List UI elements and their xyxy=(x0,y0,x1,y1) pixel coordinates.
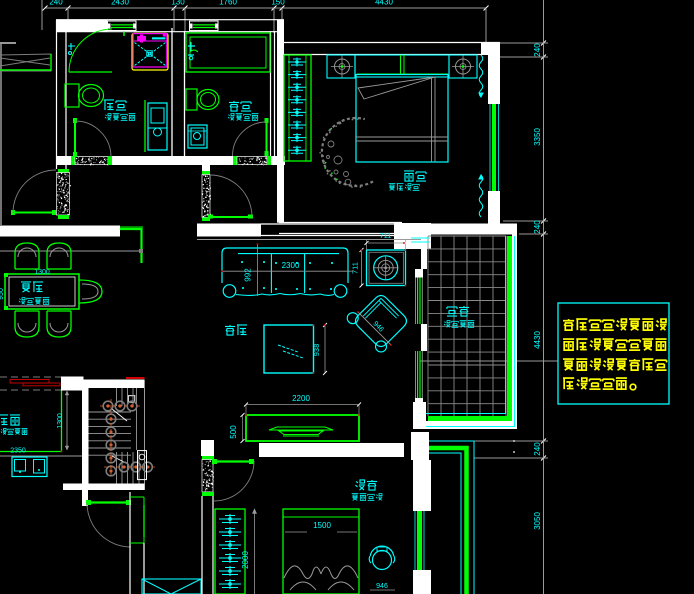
svg-text:4430: 4430 xyxy=(533,331,542,349)
svg-text:711: 711 xyxy=(380,231,392,240)
svg-text:1300: 1300 xyxy=(34,269,50,276)
svg-text:2430: 2430 xyxy=(111,0,129,7)
svg-text:2000: 2000 xyxy=(241,551,250,569)
svg-text:992: 992 xyxy=(244,268,253,282)
svg-text:150: 150 xyxy=(271,0,285,7)
svg-text:4430: 4430 xyxy=(375,0,393,7)
svg-text:2350: 2350 xyxy=(10,448,26,455)
svg-text:1500: 1500 xyxy=(313,521,331,530)
svg-text:950: 950 xyxy=(0,288,5,300)
svg-text:130: 130 xyxy=(171,0,185,7)
svg-text:946: 946 xyxy=(376,583,388,590)
svg-text:3350: 3350 xyxy=(533,128,542,146)
svg-text:2200: 2200 xyxy=(292,394,310,403)
svg-text:2300: 2300 xyxy=(282,261,300,270)
svg-text:240: 240 xyxy=(533,220,542,234)
svg-text:1300: 1300 xyxy=(57,413,64,429)
svg-text:240: 240 xyxy=(533,442,542,456)
svg-text:3050: 3050 xyxy=(533,512,542,530)
svg-text:711: 711 xyxy=(351,262,360,274)
svg-text:938: 938 xyxy=(312,344,321,357)
svg-text:500: 500 xyxy=(229,425,238,439)
svg-text:1760: 1760 xyxy=(219,0,237,7)
svg-text:240: 240 xyxy=(49,0,63,7)
svg-text:240: 240 xyxy=(533,43,542,57)
